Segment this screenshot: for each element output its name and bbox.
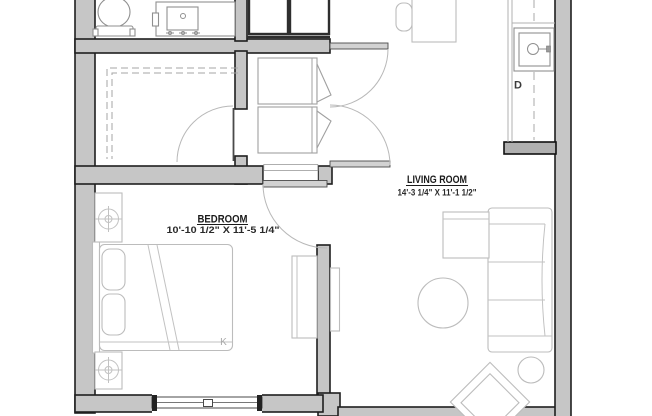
closet-door-swing: [177, 106, 233, 162]
kitchen-faucet-base: [547, 46, 551, 52]
shower-door-panel-left: [249, 0, 288, 34]
king-bed-label: K: [220, 337, 227, 348]
kitchenette: [508, 0, 555, 142]
floor-plan: BEDROOM 10'-10 1/2" X 11'-5 1/4" LIVING …: [0, 0, 652, 416]
dryer: [258, 107, 317, 153]
bedroom-dimensions: 10'-10 1/2" X 11'-5 1/4": [167, 225, 280, 236]
shower: [247, 0, 330, 37]
closet-rod-outer-dashed: [107, 68, 238, 159]
bedroom-label: BEDROOM: [198, 214, 248, 226]
toilet-tank: [96, 26, 133, 36]
walk-in-closet: [107, 68, 238, 162]
shower-door-panel-right: [290, 0, 329, 34]
wall-bath-shower-divider: [235, 0, 247, 41]
floor-plan-page: BEDROOM 10'-10 1/2" X 11'-5 1/4" LIVING …: [0, 0, 652, 416]
window-cap-right: [257, 395, 262, 411]
dryer-door-open: [317, 111, 331, 148]
laundry-door-leaf-bottom: [330, 161, 390, 167]
laundry-door-swing-top: [330, 49, 388, 107]
bedroom-door-header: [264, 165, 318, 171]
toilet-bowl: [98, 0, 130, 27]
wall-closet-right-upper: [235, 51, 247, 109]
bedroom-window: [152, 394, 262, 413]
bed-pillow-top: [102, 249, 125, 290]
washer: [258, 58, 317, 104]
bedroom-door-swing: [263, 184, 327, 248]
laundry-door-leaf-top: [330, 43, 388, 49]
laundry-closet: [258, 43, 390, 167]
wall-bath-bottom: [75, 39, 330, 53]
living-room-dimensions: 14'-3 1/4" X 11'-1 1/2": [398, 188, 477, 199]
window-mullion: [204, 400, 213, 407]
laundry-door-swing-bottom: [330, 105, 390, 165]
wall-right: [555, 0, 571, 416]
dining-table: [412, 0, 456, 42]
wall-bedroom-top: [75, 166, 263, 184]
closet-rod-inner-dashed: [112, 73, 238, 159]
bed-pillow-bottom: [102, 294, 125, 335]
accent-chair-seat: [461, 374, 519, 416]
toilet-tank-cap-right: [130, 29, 135, 36]
bathroom: [93, 0, 235, 36]
faucet-valves: [166, 32, 200, 35]
dining-chair: [396, 3, 412, 31]
window-cap-left: [152, 395, 157, 411]
wall-bedroom-living-divider: [317, 245, 330, 401]
dresser: [292, 256, 317, 338]
tv-console: [331, 268, 340, 331]
living-room-label: LIVING ROOM: [407, 174, 467, 186]
wall-kitchen-stub: [504, 142, 556, 154]
bed-headboard: [93, 242, 100, 353]
towel-bar: [153, 13, 159, 26]
side-table: [518, 357, 544, 383]
bedroom-door-leaf: [263, 181, 327, 188]
toilet-tank-cap-left: [93, 29, 98, 36]
washer-door-open: [317, 64, 331, 102]
appliance-d-label: D: [514, 80, 522, 92]
coffee-table: [418, 278, 468, 328]
